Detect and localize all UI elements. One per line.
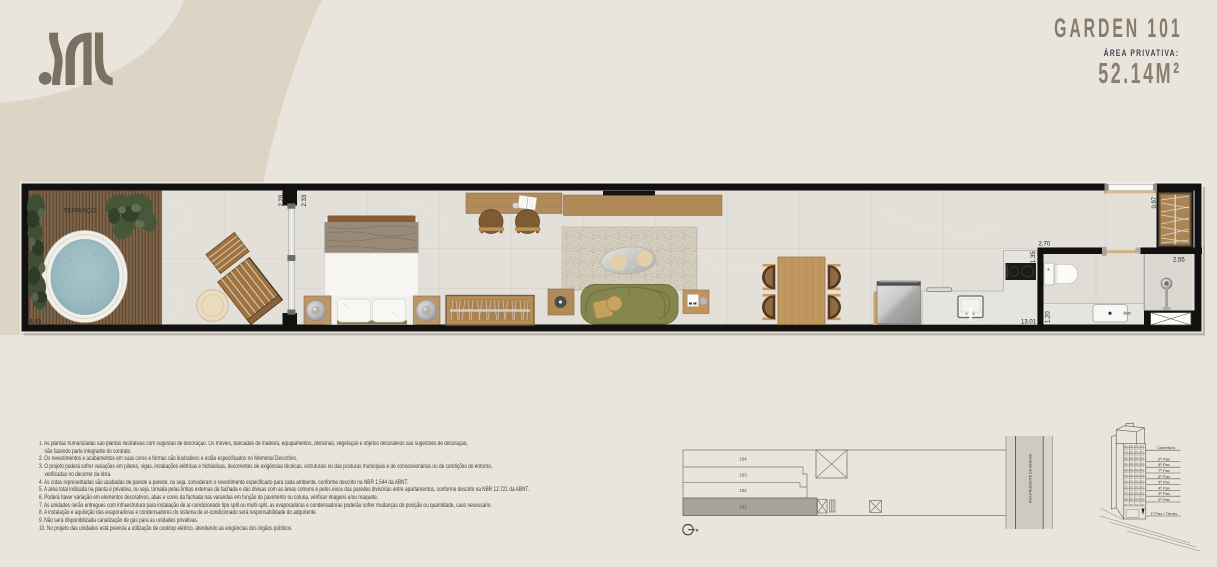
svg-text:5º Pav: 5º Pav [1158,480,1170,485]
svg-text:1.35: 1.35 [1031,251,1037,263]
svg-text:4º Pav: 4º Pav [1158,485,1170,490]
svg-text:0.97: 0.97 [1152,196,1158,208]
svg-text:2.55: 2.55 [1173,258,1185,264]
svg-text:3º Pav: 3º Pav [1158,491,1170,496]
svg-text:TERRAÇO: TERRAÇO [63,208,97,215]
svg-text:7º Pav: 7º Pav [1158,468,1170,473]
svg-text:2º Pav: 2º Pav [1158,497,1170,502]
svg-text:102: 102 [739,488,747,493]
svg-text:104: 104 [739,456,747,461]
svg-text:2.29: 2.29 [279,194,285,206]
svg-text:N: N [696,528,699,532]
svg-text:8º Pav: 8º Pav [1158,462,1170,467]
svg-text:Cobertura: Cobertura [1157,445,1176,450]
svg-text:1º Pav / Térreo: 1º Pav / Térreo [1151,511,1179,516]
svg-text:2.33: 2.33 [302,194,308,206]
svg-text:103: 103 [739,473,747,478]
svg-text:RUA PRUDENTE DE MORAIS: RUA PRUDENTE DE MORAIS [1028,453,1032,503]
svg-text:9º Pav: 9º Pav [1158,456,1170,461]
svg-text:101: 101 [739,505,747,510]
svg-text:6º Pav: 6º Pav [1158,474,1170,479]
svg-text:2.70: 2.70 [1039,242,1051,248]
svg-text:4.53: 4.53 [30,320,42,326]
svg-text:13.01: 13.01 [1021,320,1037,326]
svg-text:1.20: 1.20 [1046,311,1052,323]
